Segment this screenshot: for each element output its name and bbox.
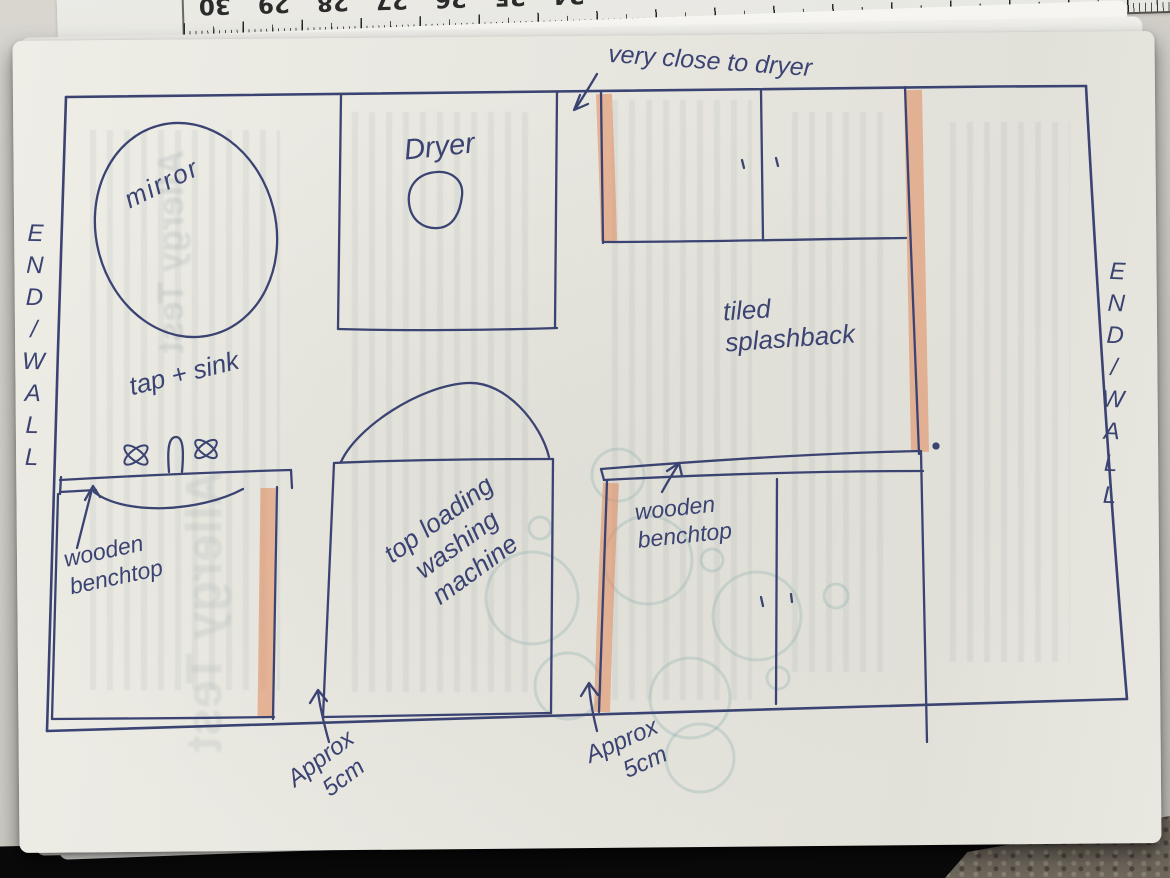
highlight-strip-cabinet-left — [604, 94, 609, 241]
highlighter-strips — [265, 90, 920, 716]
left-cabinet — [52, 487, 277, 719]
dryer-door-circle — [409, 172, 462, 228]
cabinet-divider — [776, 479, 777, 704]
overhead-cabinet — [601, 90, 906, 243]
dryer-box — [338, 92, 557, 330]
annotation-dryer: Dryer — [402, 126, 476, 168]
laundry-floor-plan-photo: 30 29 28 27 26 25 24 Allergy Test Allerg… — [0, 0, 1170, 878]
highlight-strip-left-cabinet — [265, 488, 268, 716]
annotation-wooden-benchtop-right: wooden benchtop — [633, 489, 733, 554]
cabinet-handle — [776, 158, 778, 166]
annotation-tiled-splashback: tiled splashback — [722, 288, 856, 359]
tap-handle-left — [122, 442, 151, 468]
right-cabinets — [599, 452, 927, 742]
cabinet-handle — [761, 597, 763, 606]
annotation-end-wall-left: END/WALL — [16, 220, 50, 500]
cabinet-handle — [791, 594, 792, 602]
cabinet-divider — [761, 90, 763, 240]
tap-spout — [168, 437, 183, 472]
room-outline — [47, 86, 1127, 731]
ink-dot — [934, 444, 939, 449]
cabinet-handle — [742, 160, 744, 168]
tap-handle-right — [192, 437, 219, 462]
mirror-oval — [73, 103, 300, 356]
sink-basin — [94, 489, 243, 508]
left-benchtop-and-sink — [60, 437, 292, 509]
right-benchtop — [601, 451, 923, 480]
